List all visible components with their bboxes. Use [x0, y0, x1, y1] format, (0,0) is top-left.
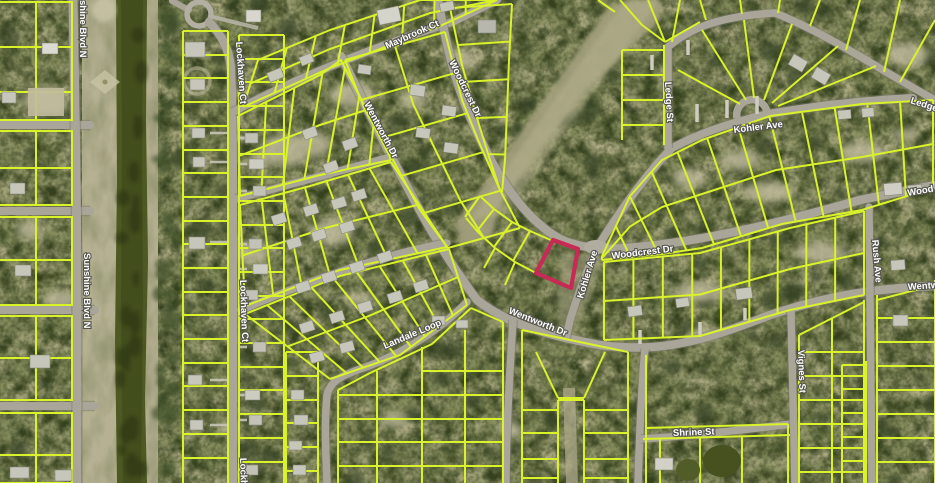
svg-text:Lockhaven Ct: Lockhaven Ct: [237, 280, 250, 343]
svg-text:Lockhav: Lockhav: [237, 458, 249, 483]
svg-text:Wentw: Wentw: [907, 280, 935, 293]
svg-text:Ledge St: Ledge St: [662, 82, 675, 123]
svg-text:Sunshine Blvd N: Sunshine Blvd N: [81, 253, 92, 329]
svg-text:Shrine St: Shrine St: [673, 427, 716, 439]
svg-text:shine Blvd N: shine Blvd N: [77, 0, 88, 58]
svg-text:Vignes St: Vignes St: [795, 350, 808, 394]
